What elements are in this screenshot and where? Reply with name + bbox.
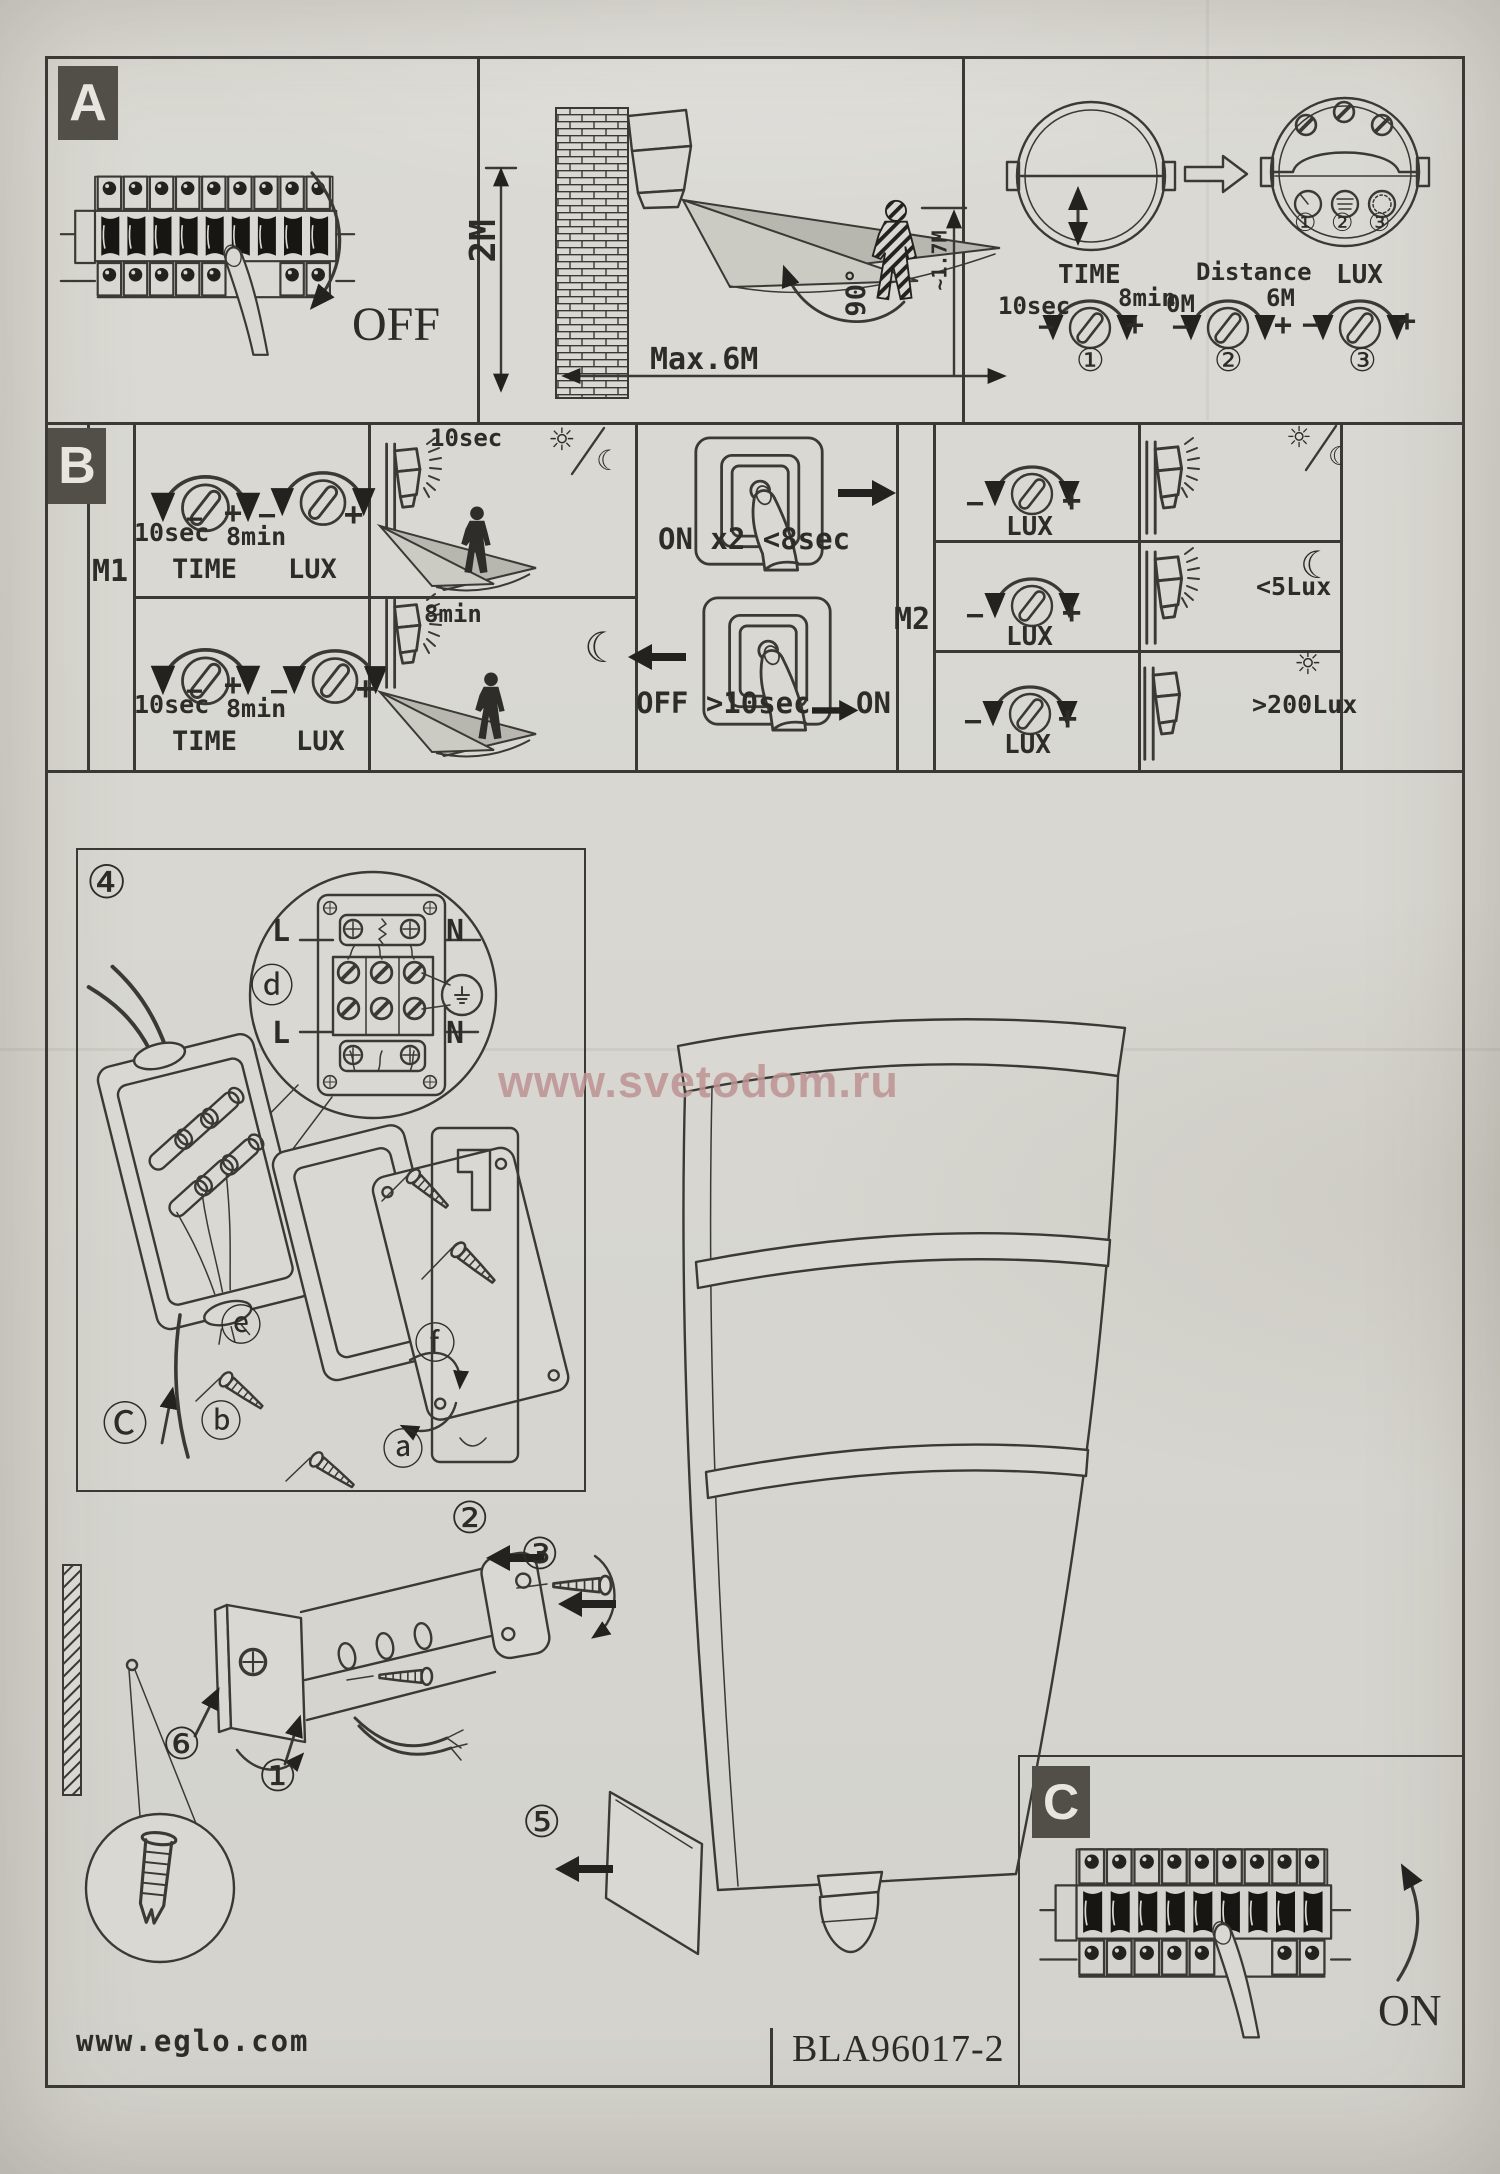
left-arrow-icon	[555, 1856, 613, 1882]
lamp-icon	[1145, 668, 1180, 759]
knob2-number: ②	[1331, 210, 1353, 236]
screw-icon	[554, 1576, 612, 1594]
off-label: OFF	[352, 300, 440, 350]
mounting-bracket	[195, 1550, 615, 1769]
minus-sign: −	[270, 676, 288, 708]
callout-e: ⓔ	[220, 1304, 262, 1348]
minus-sign: −	[1302, 310, 1319, 339]
step-2-number: ②	[1214, 344, 1243, 378]
off-gesture-label: OFF >10sec	[636, 688, 811, 718]
rotate-arrow	[595, 1556, 615, 1636]
m2r3-caption: >200Lux	[1252, 692, 1357, 718]
angle-90: 90°	[843, 267, 871, 317]
distance-dial-label: Distance	[1196, 260, 1312, 285]
plus-sign: +	[1274, 310, 1292, 342]
knob1-number: ①	[1294, 210, 1316, 236]
assembly-step-3: ③	[520, 1532, 559, 1578]
terminal-n-top: N	[446, 916, 464, 948]
plus-sign: +	[344, 498, 363, 532]
right-arrow-icon	[838, 480, 896, 506]
lamp-icon	[387, 600, 420, 687]
lamp-icon	[1147, 442, 1182, 533]
band-upper	[696, 1233, 1110, 1288]
anchor-detail-circle	[86, 1814, 234, 1962]
minus-sign: −	[1038, 312, 1055, 341]
on-gesture-label: ON x2 <8sec	[658, 524, 850, 554]
instruction-sheet-scan: A OFF 2M Max.6M 90° ~1.7M	[0, 0, 1500, 2174]
callout-c: Ⓒ	[102, 1400, 148, 1448]
screw-icon	[380, 1668, 433, 1685]
moon-icon: ☾	[1328, 444, 1351, 471]
sun-icon: ☼	[1286, 422, 1312, 452]
dim-max6m: Max.6M	[650, 344, 758, 376]
assembly-step-6: ⑥	[162, 1722, 201, 1768]
plus-sign: +	[1126, 310, 1144, 342]
m1r2-time-label: TIME	[172, 728, 237, 756]
mounting-plate	[432, 1128, 518, 1462]
sun-icon: ☼	[1294, 648, 1322, 681]
moon-icon: ☾	[596, 446, 621, 475]
beam-cone-icon	[380, 692, 536, 756]
m2r1-lux-label: LUX	[1006, 514, 1053, 541]
m2r3-lux-label: LUX	[1004, 732, 1051, 759]
step-3-number: ③	[1348, 344, 1377, 378]
cable-arrow	[162, 1392, 172, 1443]
plus-sign: +	[356, 672, 375, 706]
wall-lamp	[628, 110, 691, 208]
minus-sign: −	[186, 504, 203, 533]
lamp-icon	[1147, 552, 1182, 643]
moon-icon: ☾	[1300, 546, 1334, 586]
terminal-l-top: L	[272, 916, 290, 948]
callout-a: ⓐ	[382, 1428, 424, 1472]
off-gesture-result: ON	[856, 688, 891, 718]
plus-sign: +	[1062, 596, 1081, 630]
assembly-step-1: ①	[258, 1754, 297, 1800]
plus-sign: +	[1398, 306, 1416, 338]
table-line	[770, 2028, 773, 2086]
callout-b: ⓑ	[200, 1400, 242, 1444]
dim-2m: 2M	[465, 215, 503, 267]
breaker-panel-on-illustration	[1018, 1755, 1465, 2088]
m1r2-lux-label: LUX	[296, 728, 345, 756]
moon-icon: ☾	[584, 626, 622, 670]
m1r1-time-max: 8min	[226, 524, 286, 550]
minus-sign: −	[966, 488, 984, 520]
sun-icon: ☼	[548, 424, 576, 457]
drill-point	[127, 1660, 137, 1670]
wall-section	[63, 1565, 81, 1795]
sensor-face-closed	[1007, 102, 1175, 250]
callout-d: ⓓ	[250, 964, 294, 1010]
m1r1-lux-label: LUX	[288, 556, 337, 584]
band-lower	[706, 1445, 1088, 1498]
person-height: ~1.7M	[930, 223, 951, 299]
plus-sign: +	[1062, 484, 1081, 518]
arrow-icon	[1185, 156, 1247, 192]
light-rays-icon	[1182, 438, 1199, 497]
m1r2-caption: 8min	[424, 602, 482, 627]
left-arrow-icon	[628, 644, 686, 670]
breaker-panel-off-illustration	[60, 128, 390, 378]
minus-sign: −	[964, 706, 982, 738]
minus-sign: −	[186, 676, 203, 705]
watermark: www.svetodom.ru	[498, 1056, 899, 1108]
m2-lux-dial	[995, 467, 1069, 514]
time-dial-label: TIME	[1058, 262, 1121, 289]
minus-sign: −	[258, 500, 276, 532]
m1r1-time-label: TIME	[172, 556, 237, 584]
light-rays-icon	[1182, 548, 1199, 607]
minus-sign: −	[966, 600, 984, 632]
m2-lux-dial	[993, 687, 1067, 734]
lux-dial-label: LUX	[1336, 262, 1383, 289]
minus-sign: −	[1172, 312, 1189, 341]
m1r1-caption: 10sec	[430, 426, 502, 451]
person-figure	[873, 201, 916, 299]
motion-sensor	[818, 1872, 882, 1952]
knob3-number: ③	[1368, 210, 1390, 236]
brick-wall	[556, 108, 628, 398]
plus-sign: +	[1058, 702, 1077, 736]
m2r2-lux-label: LUX	[1006, 624, 1053, 651]
assembly-step-2: ②	[450, 1496, 489, 1542]
on-label: ON	[1378, 1988, 1442, 2034]
footer-site: www.eglo.com	[76, 2026, 310, 2056]
time-dial-min: 10sec	[998, 294, 1070, 319]
assembly-step-5: ⑤	[522, 1800, 561, 1846]
beam-cone-icon	[380, 526, 536, 590]
step-1-number: ①	[1076, 344, 1105, 378]
lamp-icon	[387, 444, 420, 531]
terminal-l-bottom: L	[272, 1018, 290, 1050]
m2-lux-dial	[995, 579, 1069, 626]
turn-on-arrow	[1398, 1869, 1418, 1980]
footer-model-number: BLA96017-2	[792, 2030, 1005, 2070]
